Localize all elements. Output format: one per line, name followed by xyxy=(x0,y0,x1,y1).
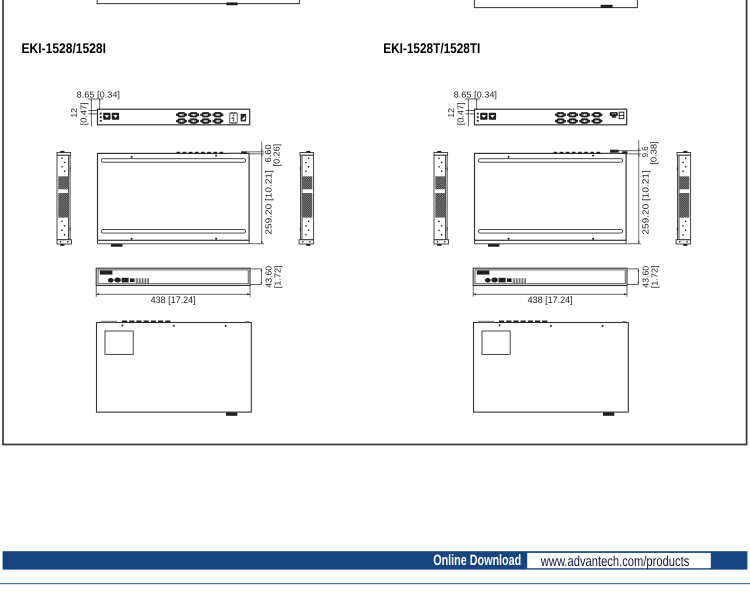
svg-text:259.20 [10.21]: 259.20 [10.21] xyxy=(263,170,273,235)
svg-text:438 [17.24]: 438 [17.24] xyxy=(151,294,196,305)
svg-text:[1.72]: [1.72] xyxy=(650,265,660,288)
svg-text:Online Download: Online Download xyxy=(433,552,521,569)
svg-text:EKI-1528T/1528TI: EKI-1528T/1528TI xyxy=(383,40,480,56)
svg-text:[0.47]: [0.47] xyxy=(78,102,88,125)
svg-text:8.65 [0.34]: 8.65 [0.34] xyxy=(454,89,497,99)
svg-text:[0.38]: [0.38] xyxy=(648,141,658,165)
svg-text:EKI-1528/1528I: EKI-1528/1528I xyxy=(22,40,107,56)
svg-text:8.65 [0.34]: 8.65 [0.34] xyxy=(77,89,120,99)
svg-text:[0.47]: [0.47] xyxy=(455,102,465,125)
svg-text:[1.72]: [1.72] xyxy=(273,265,283,288)
svg-text:259.20 [10.21]: 259.20 [10.21] xyxy=(640,170,650,235)
svg-text:438 [17.24]: 438 [17.24] xyxy=(528,294,573,305)
svg-text:[0.26]: [0.26] xyxy=(271,144,281,167)
svg-text:www.advantech.com/products: www.advantech.com/products xyxy=(540,554,689,570)
